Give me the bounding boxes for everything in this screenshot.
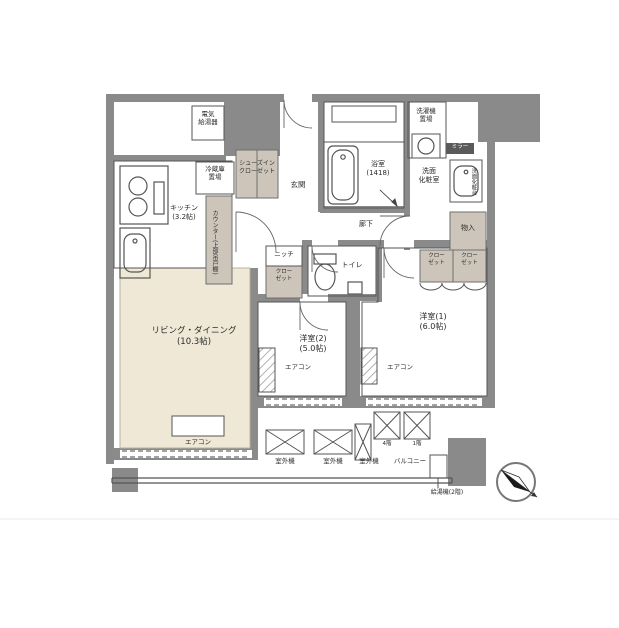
label-living-dining: リビング・ダイニング(10.3帖) (138, 326, 250, 347)
label-closet-2: クローゼット (453, 253, 486, 267)
label-toilet: トイレ (334, 261, 370, 270)
label-water-heater-2f: 給湯機(2階) (415, 489, 479, 497)
label-storage-compartment: 物入 (450, 224, 486, 233)
label-balcony: バルコニー (386, 457, 434, 465)
label-outdoor-unit-2: 室外機 (314, 457, 352, 465)
label-washer-space: 洗濯機置場 (408, 107, 444, 123)
label-outdoor-unit-3: 室外機 (350, 457, 388, 465)
label-closet-1: クローゼット (420, 253, 453, 267)
ld-aircon-box (172, 416, 224, 436)
label-hallway: 廊下 (352, 220, 380, 229)
label-outdoor-unit-1: 室外機 (266, 457, 304, 465)
label-aircon-ld: エアコン (177, 438, 219, 446)
label-aircon-western1: エアコン (379, 363, 421, 371)
floor-plan-linework (0, 0, 619, 628)
label-unit-floor4: 4階 (374, 441, 400, 448)
label-aircon-western2: エアコン (277, 363, 319, 371)
label-niche: ニッチ (266, 250, 302, 258)
label-hall-closet: クローゼット (266, 269, 302, 283)
label-kitchen: キッチン(3.2帖) (158, 204, 210, 222)
label-unit-floor1: 1階 (404, 441, 430, 448)
label-entrance: 玄関 (282, 180, 314, 189)
label-mirror: ミラー (447, 144, 473, 151)
label-western1: 洋室(1)(6.0帖) (396, 312, 470, 332)
label-western2: 洋室(2)(5.0帖) (278, 334, 348, 354)
label-vanity: 洗面化粧台 (470, 162, 476, 202)
floor-plan: 電気給湯器 冷蔵庫置場 シューズインクローゼット キッチン(3.2帖) カウンタ… (0, 0, 619, 628)
label-electric-water-heater: 電気給湯器 (192, 110, 224, 126)
label-shoes-in-closet: シューズインクローゼット (235, 160, 279, 175)
label-bath: 浴室(1418) (356, 160, 400, 178)
compass-icon (497, 463, 537, 501)
label-refrigerator-space: 冷蔵庫置場 (196, 165, 234, 181)
label-counter: カウンター(上部吊戸棚) (211, 202, 217, 282)
label-washroom: 洗面化粧室 (408, 167, 450, 185)
